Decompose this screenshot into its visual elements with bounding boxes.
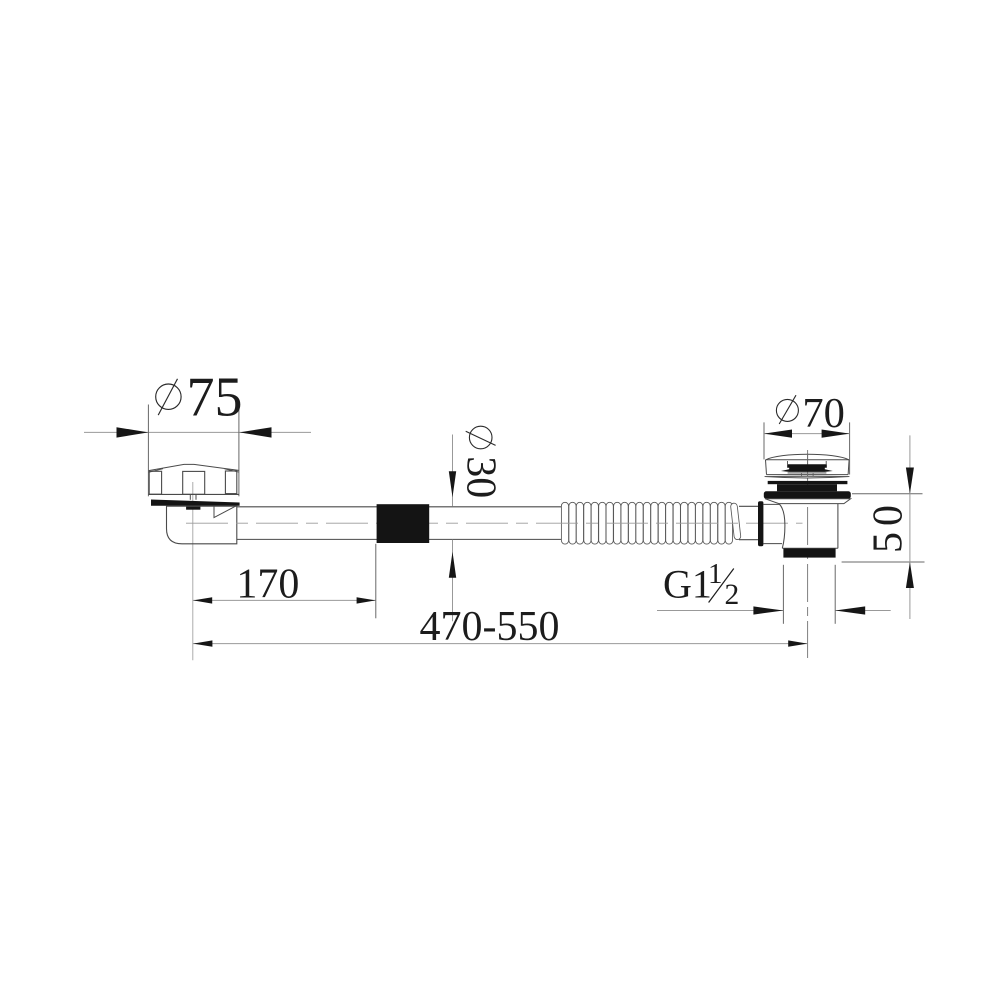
svg-text:170: 170 (236, 562, 299, 608)
svg-text:1: 1 (708, 558, 723, 590)
svg-text:G1: G1 (663, 562, 712, 607)
svg-text:30: 30 (457, 456, 503, 498)
svg-text:2: 2 (725, 579, 740, 611)
svg-text:50: 50 (866, 499, 912, 553)
svg-text:70: 70 (802, 390, 845, 437)
svg-text:470-550: 470-550 (420, 604, 560, 650)
svg-text:75: 75 (187, 366, 243, 428)
